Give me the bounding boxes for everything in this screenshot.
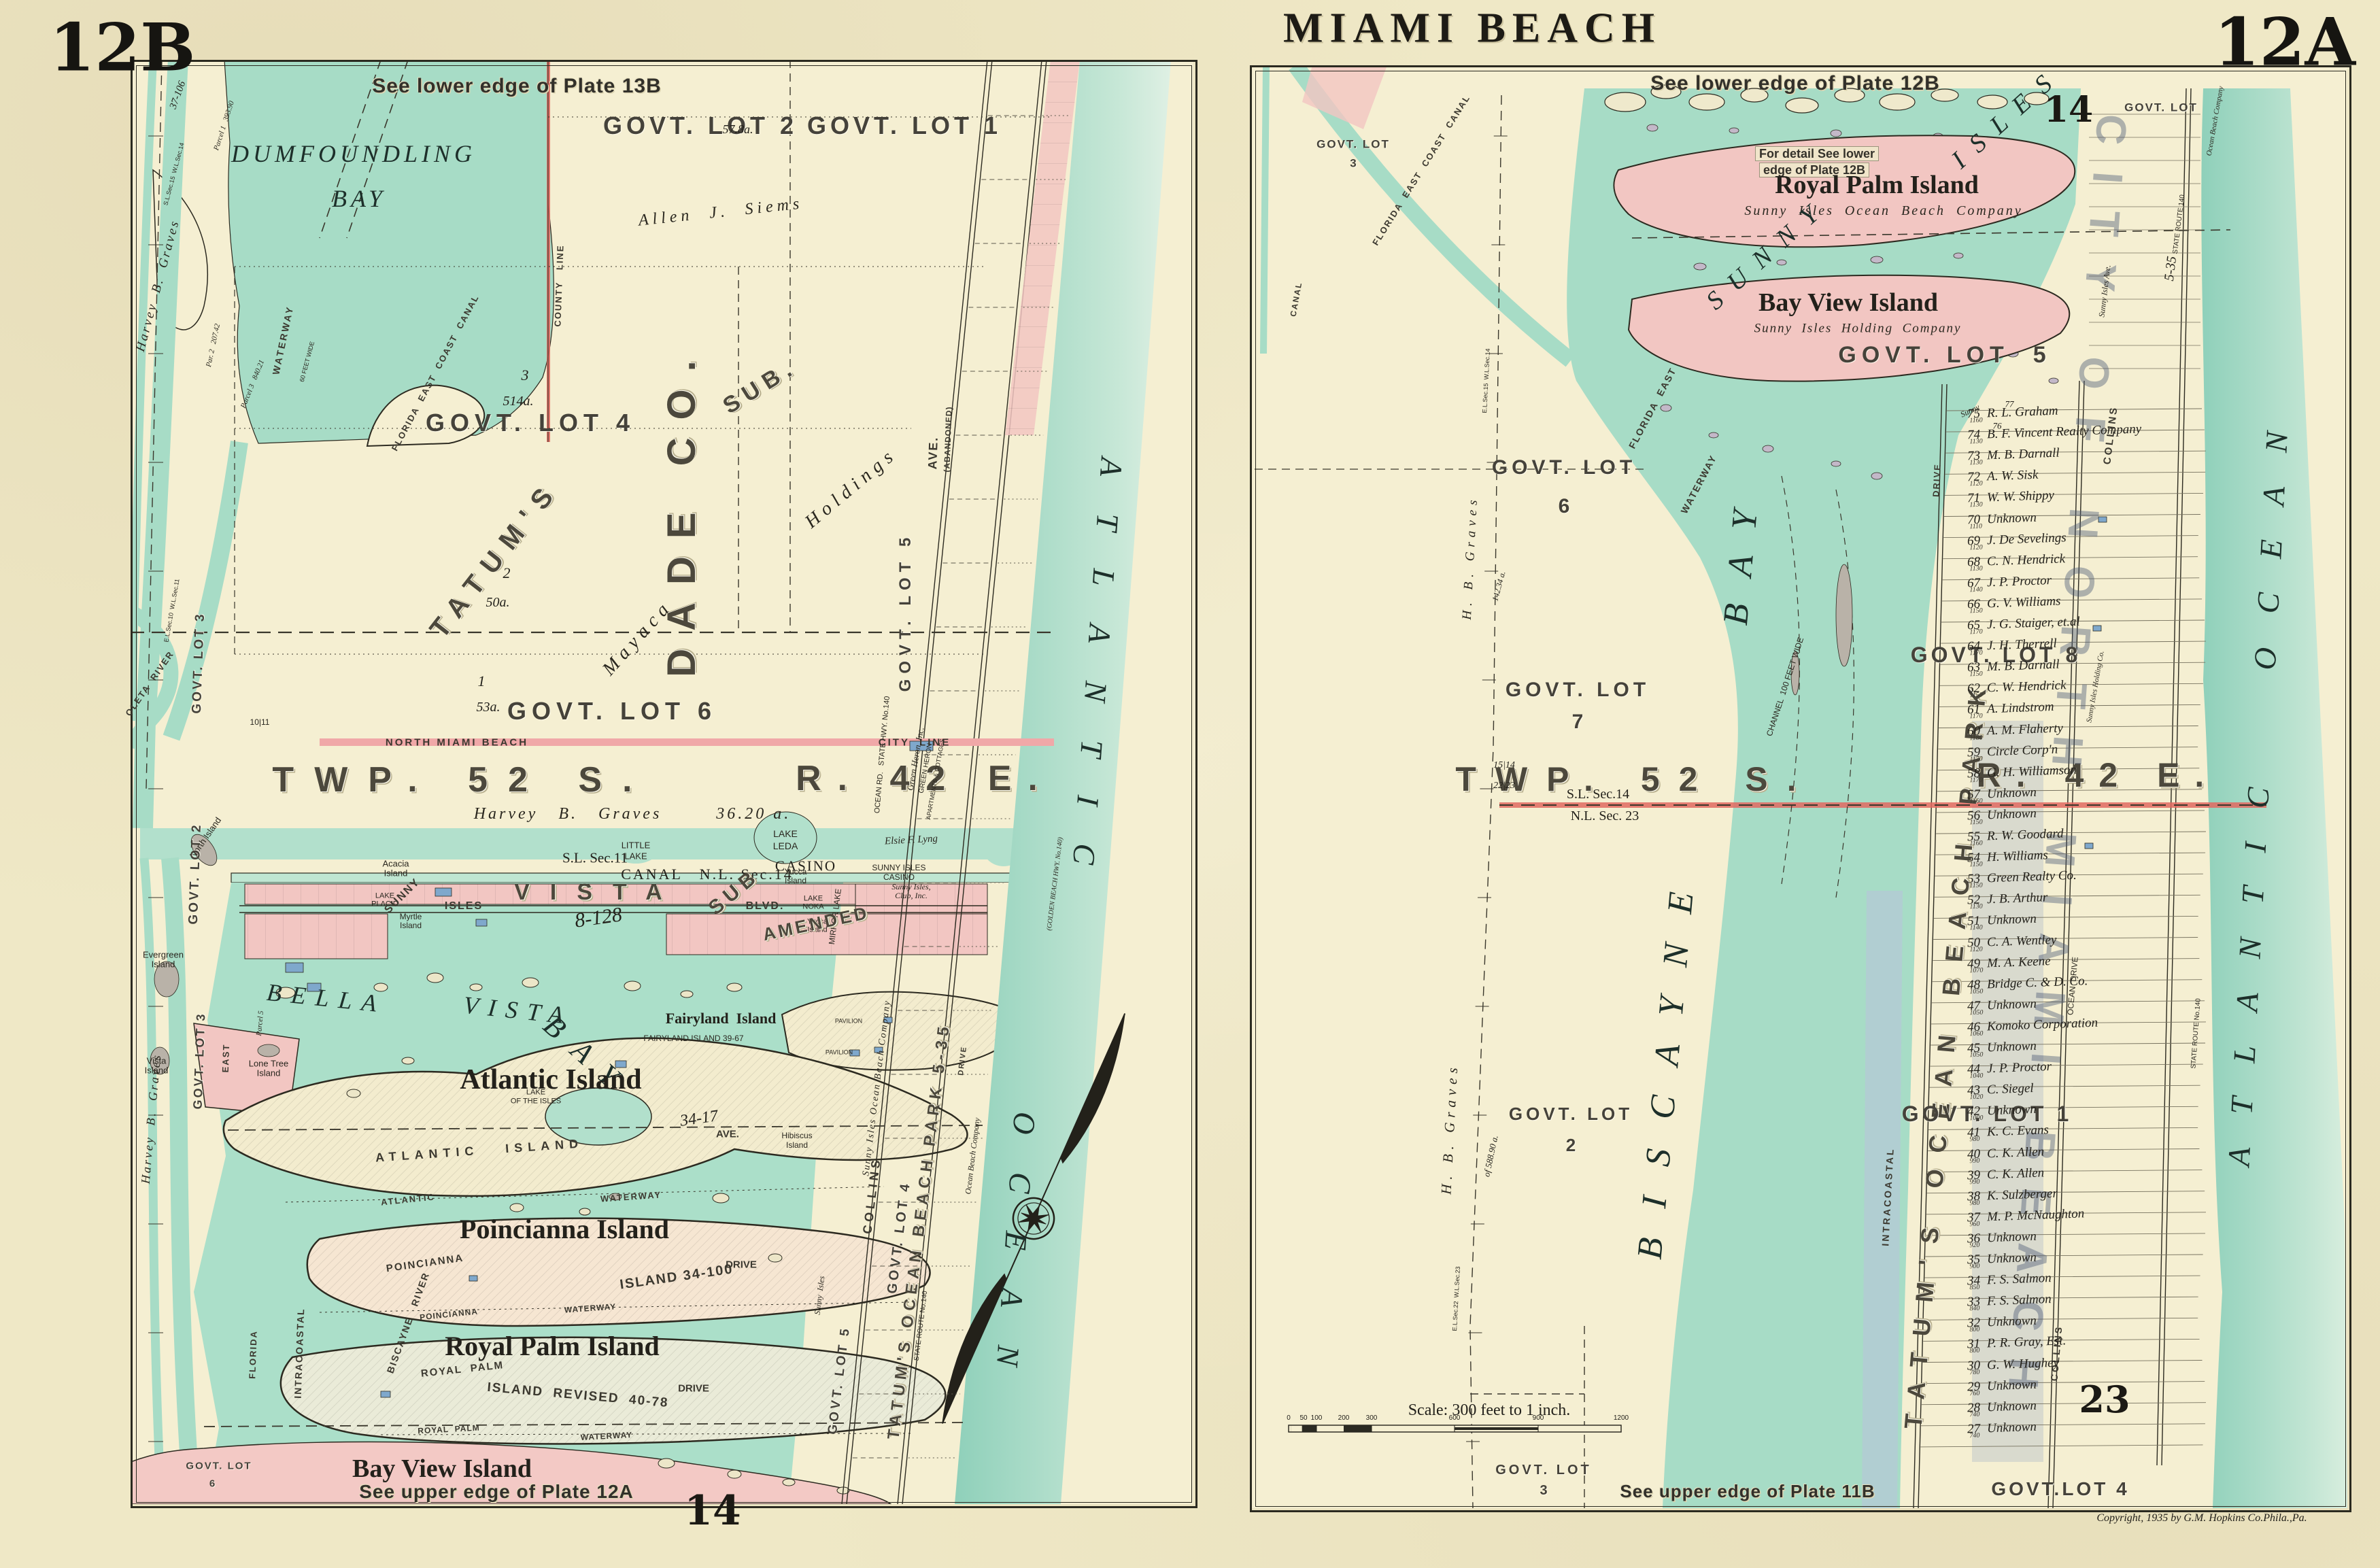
- atlas-page: 12B MIAMI BEACH 12A Copyright, 1935 by G…: [0, 0, 2380, 1568]
- owner-name: G. H. Williamson: [1987, 762, 2077, 781]
- plate-number-left: 12B: [50, 10, 196, 86]
- owner-row-lot-37: 37M. P. McNaughton960: [1949, 1203, 2194, 1227]
- owner-name: Unknown: [1987, 1102, 2037, 1119]
- owner-name: J. P. Proctor: [1987, 573, 2052, 590]
- copyright: Copyright, 1935 by G.M. Hopkins Co.Phila…: [2096, 1512, 2307, 1524]
- lot-depth: 980: [1969, 1199, 1979, 1207]
- lot-depth: 1170: [1969, 776, 1983, 784]
- owner-row-lot-74: 74B. F. Vincent Realty Company1130: [1949, 420, 2194, 444]
- owner-row-lot-60: 60A. M. Flaherty1180: [1949, 716, 2194, 740]
- lot-depth: 800: [1969, 1326, 1979, 1334]
- owner-row-lot-72: 72A. W. Sisk1120: [1949, 462, 2194, 486]
- owner-name: Unknown: [1987, 806, 2037, 823]
- owner-name: Unknown: [1987, 1229, 2037, 1246]
- owner-row-lot-48: 48Bridge C. & D. Co.1050: [1949, 970, 2194, 993]
- owner-row-lot-31: 31P. R. Gray, Est.800: [1949, 1329, 2194, 1353]
- owner-row-lot-67: 67J. P. Proctor1140: [1949, 568, 2194, 592]
- owner-name: Unknown: [1987, 1420, 2037, 1437]
- owner-row-lot-30: 30G. W. Hughey780: [1949, 1350, 2194, 1374]
- lot-depth: 900: [1969, 1263, 1979, 1271]
- owner-row-lot-51: 51Unknown1140: [1949, 906, 2194, 930]
- lot-depth: 990: [1969, 1157, 1979, 1165]
- lot-depth: 1120: [1969, 480, 1983, 488]
- owner-row-lot-73: 73M. B. Darnall1130: [1949, 441, 2194, 465]
- owner-row-lot-33: 33F. S. Salmon840: [1949, 1287, 2194, 1311]
- owner-name: J. P. Proctor: [1987, 1059, 2052, 1076]
- owner-name: Unknown: [1987, 1250, 2037, 1267]
- owner-name: J. De Sevelings: [1987, 530, 2067, 548]
- lot-depth: 840: [1969, 1305, 1979, 1313]
- owner-row-lot-27: 27Unknown740: [1949, 1414, 2194, 1438]
- lot-depth: 1070: [1969, 966, 1983, 974]
- owner-row-lot-54: 54H. Williams1150: [1949, 843, 2194, 867]
- owner-name: W. W. Shippy: [1987, 488, 2055, 505]
- lot-depth: 1120: [1969, 945, 1983, 953]
- owner-row-lot-71: 71W. W. Shippy1130: [1949, 483, 2194, 507]
- owner-name: C. Siegel: [1987, 1081, 2034, 1097]
- owner-row-lot-70: 70Unknown1110: [1949, 505, 2194, 528]
- lot-depth: 1150: [1969, 861, 1983, 869]
- owner-row-lot-62: 62C. W. Hendrick1150: [1949, 674, 2194, 698]
- owner-row-lot-56: 56Unknown1150: [1949, 801, 2194, 825]
- lot-depth: 980: [1969, 1136, 1979, 1144]
- lot-depth: 1170: [1969, 628, 1983, 636]
- owner-row-lot-59: 59Circle Corp'n1170: [1949, 737, 2194, 761]
- owner-row-lot-44: 44J. P. Proctor1040: [1949, 1055, 2194, 1078]
- owner-row-lot-65: 65J. G. Staiger, et.al1170: [1949, 611, 2194, 634]
- owner-name: Unknown: [1987, 1398, 2037, 1415]
- owner-row-lot-38: 38K. Sulzberger980: [1949, 1181, 2194, 1205]
- owner-name: K. C. Evans: [1987, 1123, 2049, 1140]
- owner-row-lot-68: 68C. N. Hendrick1130: [1949, 547, 2194, 570]
- lot-depth: 850: [1969, 1284, 1979, 1292]
- owner-row-lot-39: 39C. K. Allen990: [1949, 1160, 2194, 1184]
- owner-name: C. N. Hendrick: [1987, 551, 2066, 569]
- owner-name: J. G. Staiger, et.al: [1987, 615, 2080, 633]
- owner-row-lot-32: 32Unknown800: [1949, 1308, 2194, 1332]
- lot-depth: 1050: [1969, 987, 1983, 995]
- owner-row-lot-66: 66G. V. Williams1150: [1949, 590, 2194, 613]
- lot-depth: 1150: [1969, 607, 1983, 615]
- owner-row-lot-57: 57Unknown1160: [1949, 780, 2194, 804]
- lot-depth: 1060: [1969, 1029, 1983, 1038]
- lot-depth: 740: [1969, 1410, 1979, 1418]
- lot-depth: 760: [1969, 1389, 1979, 1397]
- lot-depth: 1050: [1969, 1051, 1983, 1059]
- lot-depth: 1150: [1969, 818, 1983, 826]
- owner-name: Unknown: [1987, 997, 2037, 1014]
- lot-depth: 1170: [1969, 755, 1983, 763]
- owner-name: Circle Corp'n: [1987, 742, 2058, 760]
- lot-depth: 1130: [1969, 903, 1983, 911]
- lot-depth: 740: [1969, 1432, 1979, 1440]
- owner-name: J. B. Arthur: [1987, 891, 2048, 908]
- owner-name: A. Lindstrom: [1987, 700, 2054, 717]
- owner-row-lot-35: 35Unknown900: [1949, 1245, 2194, 1269]
- owner-name: Unknown: [1987, 785, 2037, 802]
- lot-depth: 1130: [1969, 564, 1983, 573]
- owner-row-lot-34: 34F. S. Salmon850: [1949, 1266, 2194, 1290]
- lot-depth: 1150: [1969, 670, 1983, 679]
- owner-row-lot-40: 40C. K. Allen990: [1949, 1139, 2194, 1163]
- lot-depth: 800: [1969, 1347, 1979, 1355]
- owner-name: Unknown: [1987, 912, 2037, 929]
- owner-name: C. K. Allen: [1987, 1144, 2045, 1161]
- lot-depth: 1170: [1969, 649, 1983, 658]
- lot-depth: 1130: [1969, 459, 1983, 467]
- owner-row-lot-46: 46Komoko Corporation1060: [1949, 1012, 2194, 1036]
- owner-row-lot-29: 29Unknown760: [1949, 1371, 2194, 1395]
- owner-row-lot-45: 45Unknown1050: [1949, 1034, 2194, 1057]
- lot-depth: 1150: [1969, 692, 1983, 700]
- owner-name: R. W. Goodard: [1987, 826, 2064, 844]
- owner-name: M. P. McNaughton: [1987, 1206, 2085, 1225]
- lot-depth: 1160: [1969, 797, 1983, 805]
- owner-name: J. H. Therrell: [1987, 636, 2057, 654]
- owner-name: P. R. Gray, Est.: [1987, 1334, 2067, 1352]
- owner-name: Komoko Corporation: [1987, 1016, 2098, 1035]
- owner-name: K. Sulzberger: [1987, 1186, 2058, 1204]
- owner-row-lot-63: 63M. B. Darnall1150: [1949, 653, 2194, 677]
- owner-name: Unknown: [1987, 510, 2037, 527]
- owner-row-lot-43: 43C. Siegel1020: [1949, 1076, 2194, 1100]
- owner-name: A. W. Sisk: [1987, 468, 2039, 485]
- owner-name: Bridge C. & D. Co.: [1987, 974, 2088, 992]
- owner-row-lot-61: 61A. Lindstrom1170: [1949, 695, 2194, 719]
- lot-depth: 1160: [1969, 840, 1983, 848]
- owner-name: B. F. Vincent Realty Company: [1987, 422, 2142, 442]
- lot-depth: 990: [1969, 1178, 1979, 1186]
- lot-depth: 780: [1969, 1368, 1979, 1376]
- lot-depth: 1160: [1969, 417, 1983, 425]
- owner-row-lot-28: 28Unknown740: [1949, 1393, 2194, 1416]
- owner-row-lot-55: 55R. W. Goodard1160: [1949, 822, 2194, 846]
- owner-name: R. L. Graham: [1987, 404, 2058, 422]
- owner-row-lot-49: 49M. A. Keene1070: [1949, 949, 2194, 972]
- owner-name: Unknown: [1987, 1314, 2037, 1331]
- lot-depth: 1040: [1969, 1072, 1983, 1080]
- lot-depth: 1110: [1969, 522, 1982, 530]
- owner-list: 75R. L. Graham116074B. F. Vincent Realty…: [0, 0, 2380, 1568]
- owner-row-lot-41: 41K. C. Evans980: [1949, 1118, 2194, 1142]
- lot-depth: 1120: [1969, 543, 1983, 551]
- lot-depth: 1020: [1969, 1093, 1983, 1102]
- owner-row-lot-64: 64J. H. Therrell1170: [1949, 632, 2194, 655]
- owner-name: C. K. Allen: [1987, 1165, 2045, 1182]
- owner-row-lot-47: 47Unknown1050: [1949, 991, 2194, 1015]
- lot-depth: 1150: [1969, 882, 1983, 890]
- lot-depth: 1140: [1969, 924, 1983, 932]
- owner-row-lot-69: 69J. De Sevelings1120: [1949, 526, 2194, 549]
- owner-name: F. S. Salmon: [1987, 1271, 2052, 1288]
- owner-name: G. W. Hughey: [1987, 1355, 2060, 1373]
- owner-row-lot-36: 36Unknown920: [1949, 1224, 2194, 1248]
- owner-row-lot-50: 50C. A. Wentley1120: [1949, 927, 2194, 951]
- owner-name: Unknown: [1987, 1039, 2037, 1056]
- lot-depth: 960: [1969, 1221, 1979, 1229]
- owner-name: Green Realty Co.: [1987, 868, 2077, 887]
- owner-name: G. V. Williams: [1987, 594, 2061, 611]
- owner-name: M. A. Keene: [1987, 954, 2051, 971]
- owner-name: A. M. Flaherty: [1987, 721, 2064, 738]
- owner-name: F. S. Salmon: [1987, 1292, 2052, 1309]
- lot-depth: 1180: [1969, 734, 1983, 742]
- lot-depth: 1130: [1969, 501, 1983, 509]
- owner-row-lot-52: 52J. B. Arthur1130: [1949, 885, 2194, 909]
- owner-row-lot-53: 53Green Realty Co.1150: [1949, 864, 2194, 888]
- lot-depth: 1050: [1969, 1008, 1983, 1017]
- lot-depth: 1000: [1969, 1114, 1983, 1123]
- owner-row-lot-58: 58G. H. Williamson1170: [1949, 758, 2194, 782]
- lot-depth: 1170: [1969, 713, 1983, 721]
- lot-depth: 1140: [1969, 585, 1983, 594]
- owner-name: M. B. Darnall: [1987, 446, 2060, 464]
- page-title: MIAMI BEACH: [1283, 5, 1661, 53]
- owner-row-lot-42: 42Unknown1000: [1949, 1097, 2194, 1121]
- owner-row-lot-75: 75R. L. Graham1160: [1949, 399, 2194, 423]
- owner-name: Unknown: [1987, 1377, 2037, 1394]
- owner-name: C. A. Wentley: [1987, 932, 2057, 950]
- plate-number-right: 12A: [2214, 4, 2356, 81]
- lot-depth: 1130: [1969, 438, 1983, 446]
- owner-name: M. B. Darnall: [1987, 658, 2060, 675]
- lot-depth: 920: [1969, 1242, 1979, 1250]
- owner-name: C. W. Hendrick: [1987, 679, 2067, 696]
- owner-name: H. Williams: [1987, 848, 2048, 865]
